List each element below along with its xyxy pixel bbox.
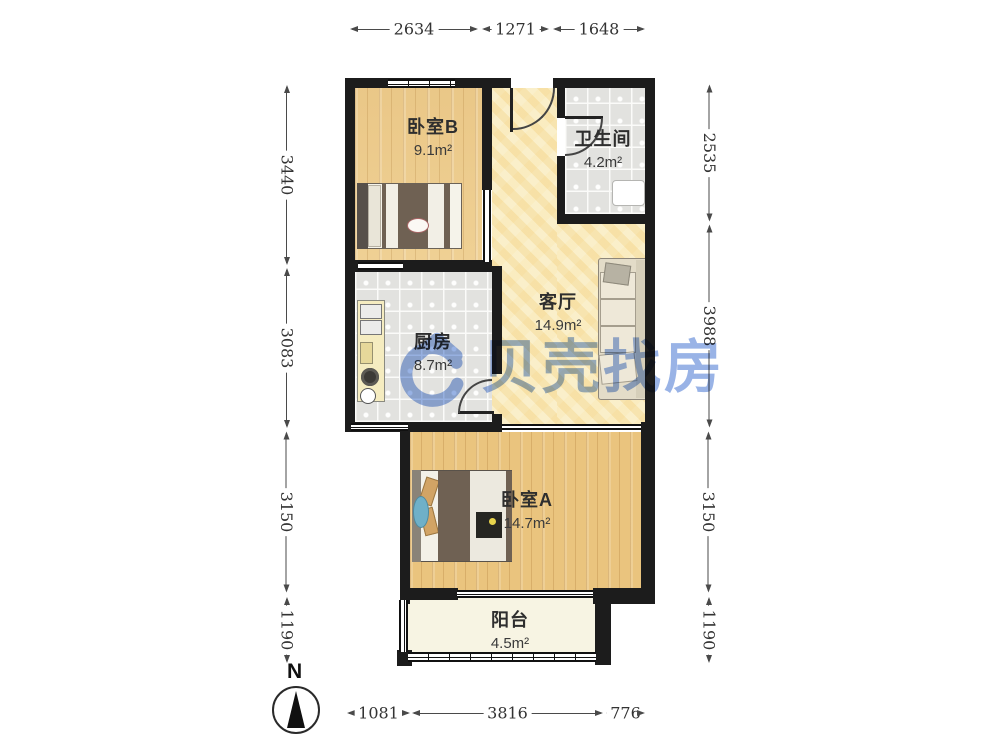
room-name: 客厅 (503, 288, 613, 314)
wall-kitchen-right (492, 266, 502, 374)
room-name: 厨房 (378, 328, 488, 354)
wall-bedroom-a-left (400, 422, 410, 604)
room-name: 阳台 (455, 606, 565, 632)
floor-plan-canvas: 卧室B 9.1m² 卫生间 4.2m² 客厅 14.9m² 厨房 8.7m² 卧… (0, 0, 1000, 750)
dim-value: 2634 (390, 20, 439, 39)
room-label-kitchen: 厨房 8.7m² (378, 328, 488, 374)
wall-left (345, 78, 355, 432)
room-label-balcony: 阳台 4.5m² (455, 606, 565, 652)
dim-left-4: 1190 (278, 597, 296, 663)
dim-top-1: 2634 (350, 20, 478, 38)
bed-b-runner-2 (428, 184, 444, 248)
dim-value: 3083 (278, 324, 297, 373)
compass-north-label: N (287, 660, 302, 684)
window-kitchen (351, 423, 408, 431)
wall-balcony-right (595, 593, 611, 665)
room-label-bedroom-b: 卧室B 9.1m² (378, 113, 488, 159)
wall-bathroom-left-top (557, 88, 565, 118)
dim-value: 3440 (278, 151, 297, 200)
dim-value: 1190 (278, 606, 297, 655)
sofa-pillow (603, 262, 632, 285)
window-balcony-left (399, 600, 408, 652)
dim-left-2: 3083 (278, 268, 296, 428)
dim-right-2: 3988 (701, 225, 719, 428)
kitchen-dial-icon (360, 388, 376, 404)
entrance-opening (511, 78, 553, 88)
dim-value: 2535 (700, 129, 719, 178)
window-balcony-bottom (408, 652, 596, 662)
bed-b-runner-1 (386, 184, 398, 248)
bathroom-fixture (612, 180, 645, 206)
dim-value: 3150 (699, 488, 718, 537)
dim-right-4: 1190 (700, 597, 718, 663)
dim-value: 1271 (491, 20, 540, 39)
dim-top-2: 1271 (482, 20, 549, 38)
room-label-living: 客厅 14.9m² (503, 288, 613, 334)
dim-value: 3816 (483, 704, 532, 723)
bed-b-headboard (357, 183, 368, 249)
dim-left-1: 3440 (278, 85, 296, 265)
room-label-bathroom: 卫生间 4.2m² (548, 125, 658, 171)
room-area: 9.1m² (378, 142, 488, 159)
dim-bottom-2: 3816 (412, 704, 603, 722)
dim-value: 1081 (354, 704, 403, 723)
wall-bathroom-bottom (557, 214, 655, 224)
room-area: 4.2m² (548, 154, 658, 171)
room-area: 4.5m² (455, 635, 565, 652)
balcony-sliding-door (457, 590, 593, 598)
dim-right-3: 3150 (700, 432, 718, 593)
threshold-living-bedroom-a (502, 424, 641, 430)
dim-bottom-1: 1081 (347, 704, 410, 722)
bed-b-pillows (368, 185, 381, 247)
wall-kitchen-bottom-interior (410, 422, 502, 432)
partition-bedroom-b-sliding (483, 190, 491, 262)
kitchen-sink-basin-1 (360, 304, 382, 319)
room-area: 8.7m² (378, 357, 488, 374)
dim-value: 3988 (700, 302, 719, 351)
dim-value: 776 (606, 704, 645, 723)
dim-bottom-3: 776 (606, 704, 645, 722)
room-area: 14.9m² (503, 317, 613, 334)
room-label-bedroom-a: 卧室A 14.7m² (472, 486, 582, 532)
compass-arrow-icon (287, 691, 305, 728)
room-area: 14.7m² (472, 515, 582, 532)
dim-right-1: 2535 (701, 85, 719, 222)
wall-bedroom-a-bottom-left (410, 588, 458, 600)
partition-bedroom-b-bottom (358, 262, 403, 270)
dim-top-3: 1648 (553, 20, 645, 38)
window-bedroom-b (388, 79, 455, 88)
room-name: 卫生间 (548, 125, 658, 151)
dim-left-3: 3150 (278, 432, 296, 593)
kitchen-board (360, 342, 373, 364)
kitchen-burner-icon (361, 368, 379, 386)
wall-bedroom-a-right (641, 422, 655, 604)
room-name: 卧室B (378, 113, 488, 139)
dim-value: 1190 (700, 606, 719, 655)
dim-value: 1648 (575, 20, 624, 39)
dim-value: 3150 (277, 488, 296, 537)
room-name: 卧室A (472, 486, 582, 512)
bed-b-tray (407, 218, 429, 233)
bed-a-blue-cushion (413, 496, 429, 528)
sofa-cushion (599, 351, 638, 385)
